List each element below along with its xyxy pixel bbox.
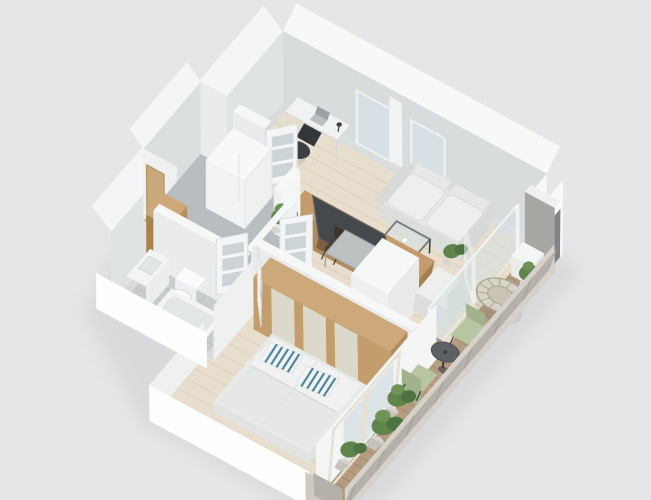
floor-plan-stage (0, 0, 651, 500)
floor-plan-render (0, 0, 651, 500)
